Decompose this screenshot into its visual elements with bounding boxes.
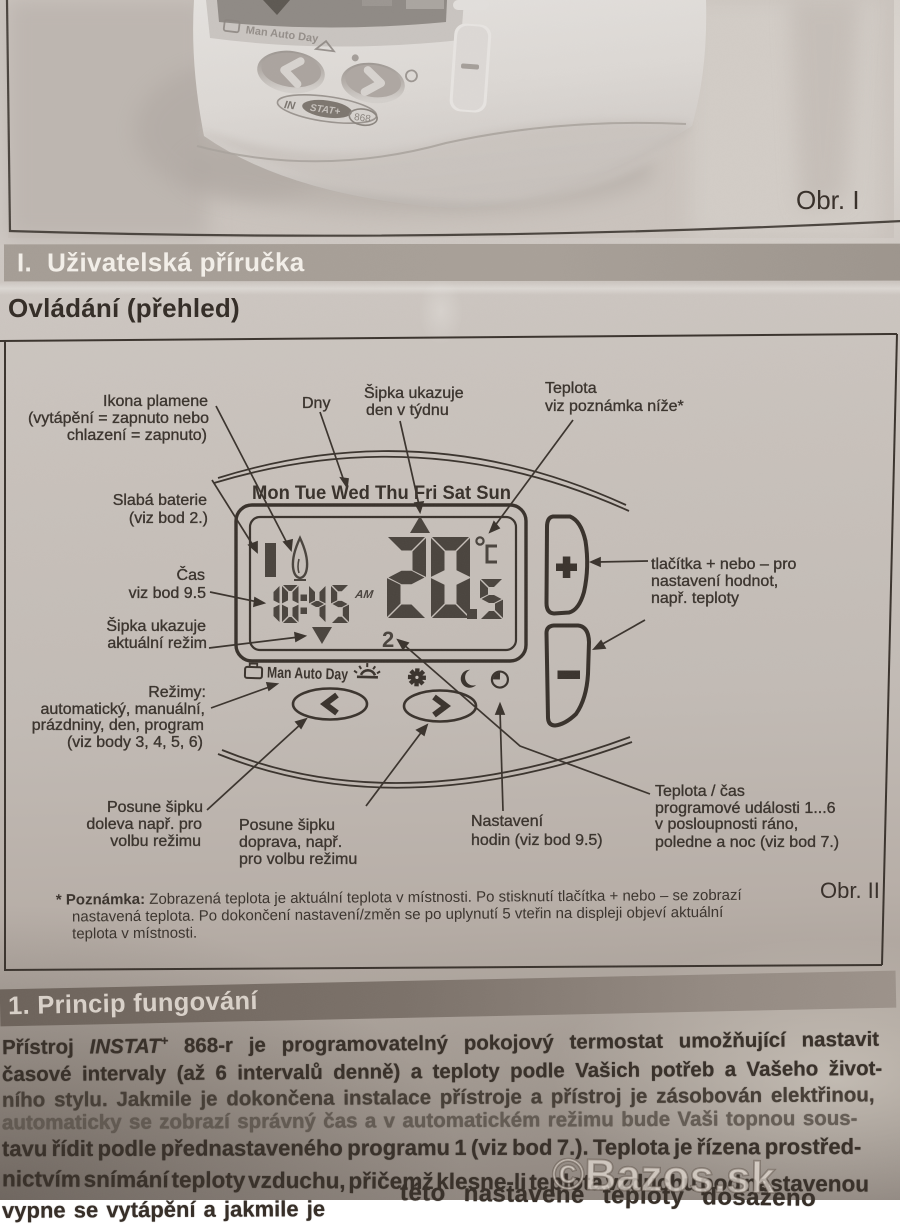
svg-text:(vytápění = zapnuto nebo: (vytápění = zapnuto nebo (28, 410, 209, 427)
svg-text:prázdniny, den, program: prázdniny, den, program (32, 717, 204, 734)
svg-text:chlazení = zapnuto): chlazení = zapnuto) (67, 427, 207, 444)
svg-text:Slabá baterie: Slabá baterie (113, 492, 207, 509)
svg-text:doleva např. pro: doleva např. pro (86, 816, 202, 833)
svg-text:viz poznámka níže*: viz poznámka níže* (545, 398, 684, 415)
svg-text:programové události 1...6: programové události 1...6 (655, 800, 836, 817)
svg-text:automatický, manuální,: automatický, manuální, (40, 701, 205, 718)
svg-text:Teplota: Teplota (545, 380, 597, 397)
svg-text:aktuální režim: aktuální režim (107, 635, 207, 652)
svg-text:v posloupnosti ráno,: v posloupnosti ráno, (655, 816, 798, 833)
svg-text:viz bod 9.5: viz bod 9.5 (129, 585, 206, 602)
svg-text:(viz body 3, 4, 5, 6): (viz body 3, 4, 5, 6) (67, 734, 203, 751)
svg-text:např. teploty: např. teploty (651, 590, 739, 607)
svg-text:Čas: Čas (177, 565, 205, 584)
svg-text:doprava, např.: doprava, např. (239, 834, 342, 851)
svg-text:hodin (viz bod 9.5): hodin (viz bod 9.5) (471, 832, 603, 849)
svg-text:Šipka ukazuje: Šipka ukazuje (106, 616, 206, 635)
svg-text:Posune šipku: Posune šipku (107, 799, 203, 816)
svg-text:poledne a noc (viz bod 7.): poledne a noc (viz bod 7.) (655, 834, 839, 851)
svg-text:nastavení hodnot,: nastavení hodnot, (651, 573, 778, 590)
svg-text:Dny: Dny (302, 395, 330, 412)
svg-text:2: 2 (382, 627, 394, 652)
svg-text:Teplota / čas: Teplota / čas (655, 783, 745, 800)
svg-text:Mon Tue Wed Thu Fri Sat Sun: Mon Tue Wed Thu Fri Sat Sun (252, 483, 511, 504)
svg-text:AM: AM (353, 589, 374, 601)
svg-text:Režimy:: Režimy: (148, 684, 206, 701)
svg-text:Šipka ukazuje: Šipka ukazuje (364, 383, 464, 402)
svg-text:Man Auto Day: Man Auto Day (267, 664, 349, 683)
svg-text:pro volbu režimu: pro volbu režimu (239, 851, 357, 868)
svg-text:Ikona plamene: Ikona plamene (103, 393, 208, 410)
svg-text:den v týdnu: den v týdnu (366, 402, 449, 419)
svg-text:Posune šipku: Posune šipku (239, 817, 335, 834)
svg-text:volbu režimu: volbu režimu (110, 833, 201, 850)
svg-text:tlačítka + nebo – pro: tlačítka + nebo – pro (651, 556, 797, 573)
svg-text:(viz bod 2.): (viz bod 2.) (129, 510, 208, 527)
svg-text:Nastavení: Nastavení (471, 813, 544, 830)
